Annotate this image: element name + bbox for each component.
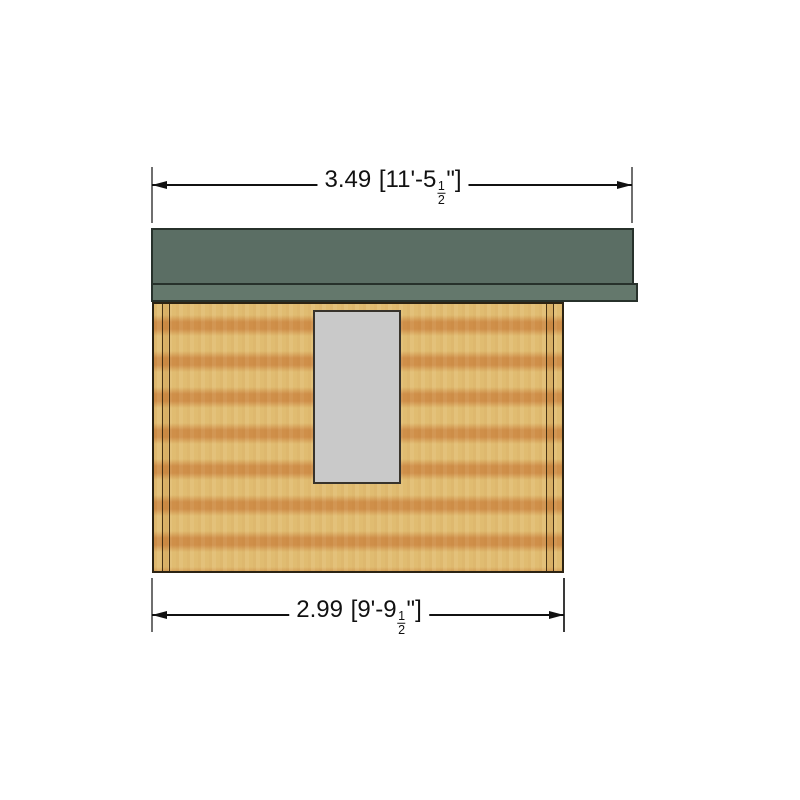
metric-value-top: 3.49 bbox=[324, 166, 371, 193]
arrowhead-right-icon bbox=[617, 181, 632, 189]
extension-line-bottom-right bbox=[563, 578, 565, 632]
roof-fascia bbox=[151, 283, 638, 302]
corner-joint-right bbox=[546, 304, 554, 571]
imperial-value-top: [11'-512"] bbox=[379, 166, 462, 193]
inch-fraction: 12 bbox=[437, 180, 445, 207]
extension-line-bottom-left bbox=[151, 578, 153, 632]
dimension-label-bottom: 2.99[9'-912"] bbox=[289, 596, 429, 637]
extension-line-top-left bbox=[151, 167, 153, 223]
roof-panel bbox=[151, 228, 634, 285]
corner-joint-left bbox=[162, 304, 170, 571]
bracket-close: ] bbox=[415, 596, 422, 623]
inch-fraction: 12 bbox=[398, 610, 406, 637]
fraction-denominator: 2 bbox=[437, 193, 445, 207]
arrowhead-left-icon bbox=[152, 611, 167, 619]
arrowhead-right-icon bbox=[549, 611, 564, 619]
fraction-numerator: 1 bbox=[398, 610, 405, 623]
inch-mark: " bbox=[407, 596, 416, 623]
log-cabin-side-elevation-diagram: 3.49[11'-512"] 2.99[9'-912"] bbox=[0, 0, 800, 800]
feet-inches: 11'-5 bbox=[386, 166, 437, 193]
feet-inches: 9'-9 bbox=[357, 596, 396, 623]
dimension-label-top: 3.49[11'-512"] bbox=[317, 166, 468, 207]
fraction-numerator: 1 bbox=[438, 180, 445, 193]
window bbox=[313, 310, 401, 484]
arrowhead-left-icon bbox=[152, 181, 167, 189]
bracket-close: ] bbox=[455, 166, 462, 193]
extension-line-top-right bbox=[631, 167, 633, 223]
imperial-value-bottom: [9'-912"] bbox=[351, 596, 422, 623]
metric-value-bottom: 2.99 bbox=[296, 596, 343, 623]
fraction-denominator: 2 bbox=[398, 623, 406, 637]
